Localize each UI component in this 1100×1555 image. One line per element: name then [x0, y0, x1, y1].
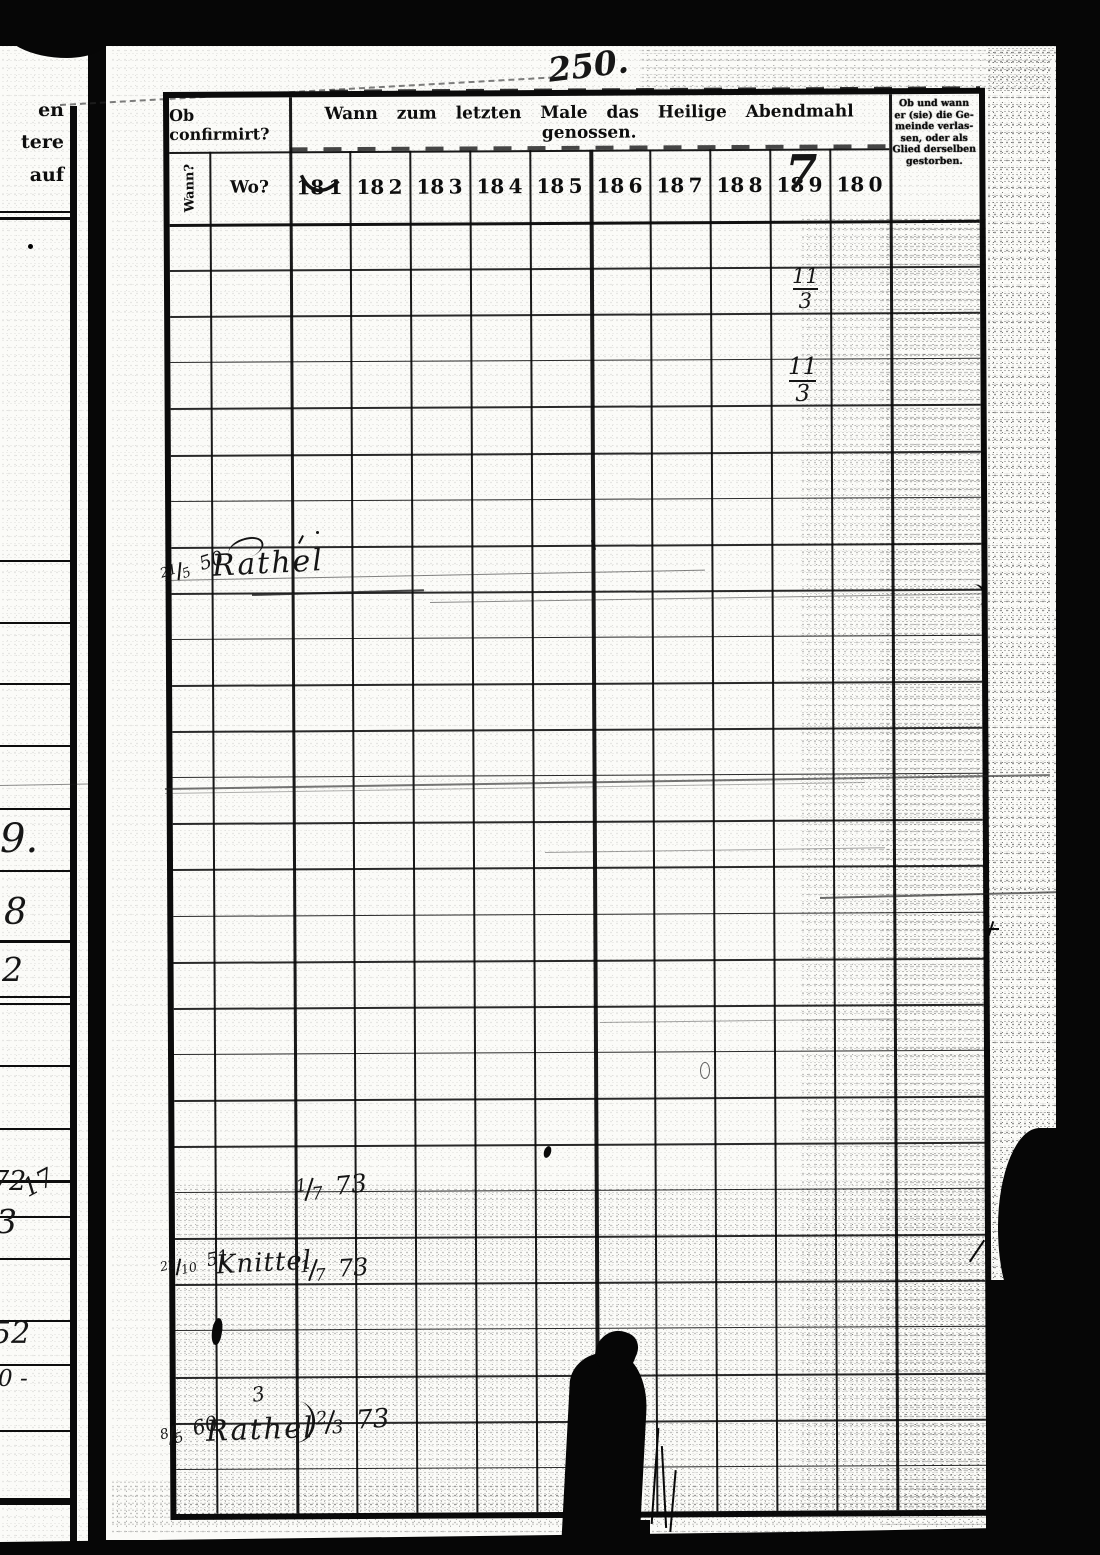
grid-line	[589, 150, 600, 1512]
grid-line	[769, 149, 778, 1511]
communion-fraction: 11 3	[792, 266, 819, 312]
ink-dot	[28, 244, 33, 249]
grid-line	[409, 151, 418, 1513]
grid-line	[649, 149, 658, 1511]
grid-lines	[169, 94, 986, 1514]
fraction-denominator: 7	[314, 1264, 326, 1285]
grid-line	[349, 151, 358, 1513]
fraction-numerator: 11	[792, 266, 819, 287]
left-printed-fragment: en tere auf	[0, 94, 64, 191]
fraction-numerator: 11	[788, 356, 817, 379]
scan-shadow	[986, 1280, 1100, 1555]
year-value: 73	[355, 1404, 390, 1436]
marginalia: 9.	[0, 816, 38, 862]
left-table-bottom-border	[0, 1498, 77, 1505]
marginalia: 52	[0, 1316, 30, 1351]
fraction-denominator: 5	[173, 1429, 186, 1447]
marginalia: 8	[4, 892, 27, 933]
marginalia: 2	[2, 950, 23, 989]
fraction-denominator: 3	[793, 288, 818, 312]
fragment-line: en	[0, 94, 64, 126]
pen-mark	[700, 1062, 710, 1079]
fragment-line: tere	[0, 126, 64, 158]
fragment-line: auf	[0, 159, 64, 191]
fraction-denominator: 3	[331, 1417, 344, 1439]
marginalia: 0 -	[0, 1366, 28, 1392]
fraction-numerator: 1	[299, 1256, 311, 1277]
grid-line	[469, 150, 478, 1512]
scanned-register-page: en tere auf 9. 8 2 72 17 3 52 0 - 250.	[0, 0, 1100, 1555]
communion-date: 17 73	[299, 1252, 369, 1286]
scan-edge-highlight	[1051, 60, 1055, 612]
fraction-denominator: 3	[789, 380, 816, 406]
grid-line	[289, 97, 299, 1513]
pen-mark	[316, 531, 319, 534]
confirmation-place: Knittel	[215, 1246, 313, 1281]
left-table-border	[70, 106, 77, 1551]
marginalia: 3	[0, 1202, 17, 1241]
scan-border-top	[0, 0, 1100, 46]
grid-line	[829, 149, 838, 1511]
communion-fraction: 11 3	[788, 356, 817, 406]
grid-line	[709, 149, 718, 1511]
grid-line	[209, 152, 218, 1514]
year-value: 73	[337, 1252, 369, 1282]
year-value: 73	[334, 1168, 369, 1200]
fraction-denominator: 7	[311, 1184, 324, 1205]
fraction-numerator: 22	[158, 1256, 177, 1274]
register-table: Ob confirmirt? Wann zum letzten Male das…	[163, 88, 992, 1520]
grid-line	[889, 94, 899, 1510]
fraction-numerator: 21	[158, 562, 179, 581]
communion-date: 23 73	[315, 1403, 391, 1439]
grid-line	[529, 150, 538, 1512]
